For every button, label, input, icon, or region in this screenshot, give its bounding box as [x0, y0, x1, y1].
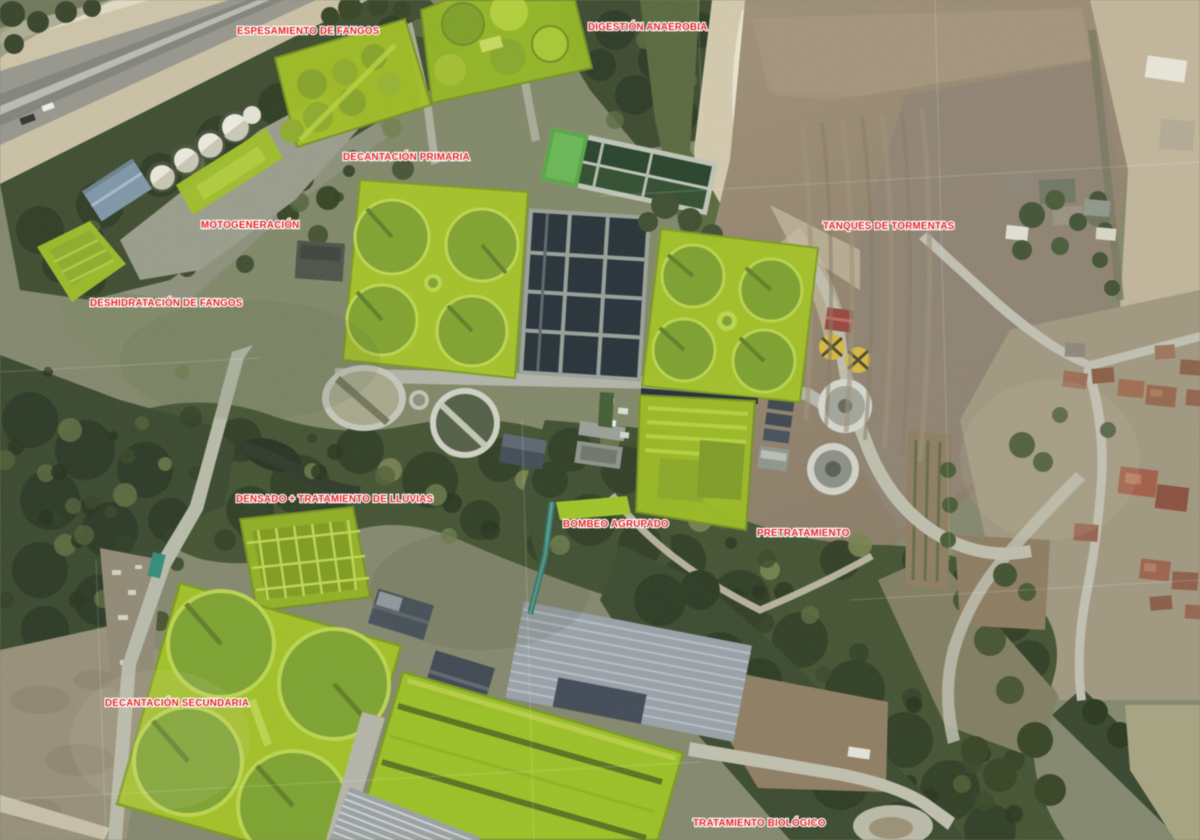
- svg-text:TRATAMIENTO BIOLÓGICO: TRATAMIENTO BIOLÓGICO: [693, 817, 826, 829]
- svg-text:ESPESAMIENTO DE FANGOS: ESPESAMIENTO DE FANGOS: [237, 26, 380, 37]
- svg-text:MOTOGENERACIÓN: MOTOGENERACIÓN: [201, 219, 299, 231]
- svg-text:DESHIDRATACIÓN DE FANGOS: DESHIDRATACIÓN DE FANGOS: [90, 297, 243, 309]
- svg-text:DENSADO + TRATAMIENTO DE LLUVI: DENSADO + TRATAMIENTO DE LLUVIAS: [236, 494, 433, 505]
- svg-text:DIGESTIÓN ANAEROBIA: DIGESTIÓN ANAEROBIA: [588, 21, 707, 33]
- svg-text:DECANTACIÓN PRIMARIA: DECANTACIÓN PRIMARIA: [343, 151, 470, 163]
- svg-text:DECANTACIÓN SECUNDARIA: DECANTACIÓN SECUNDARIA: [105, 697, 249, 709]
- svg-text:PRETRATAMIENTO: PRETRATAMIENTO: [757, 528, 850, 539]
- svg-text:BOMBEO AGRUPADO: BOMBEO AGRUPADO: [563, 519, 669, 530]
- svg-text:TANQUES DE TORMENTAS: TANQUES DE TORMENTAS: [823, 221, 955, 232]
